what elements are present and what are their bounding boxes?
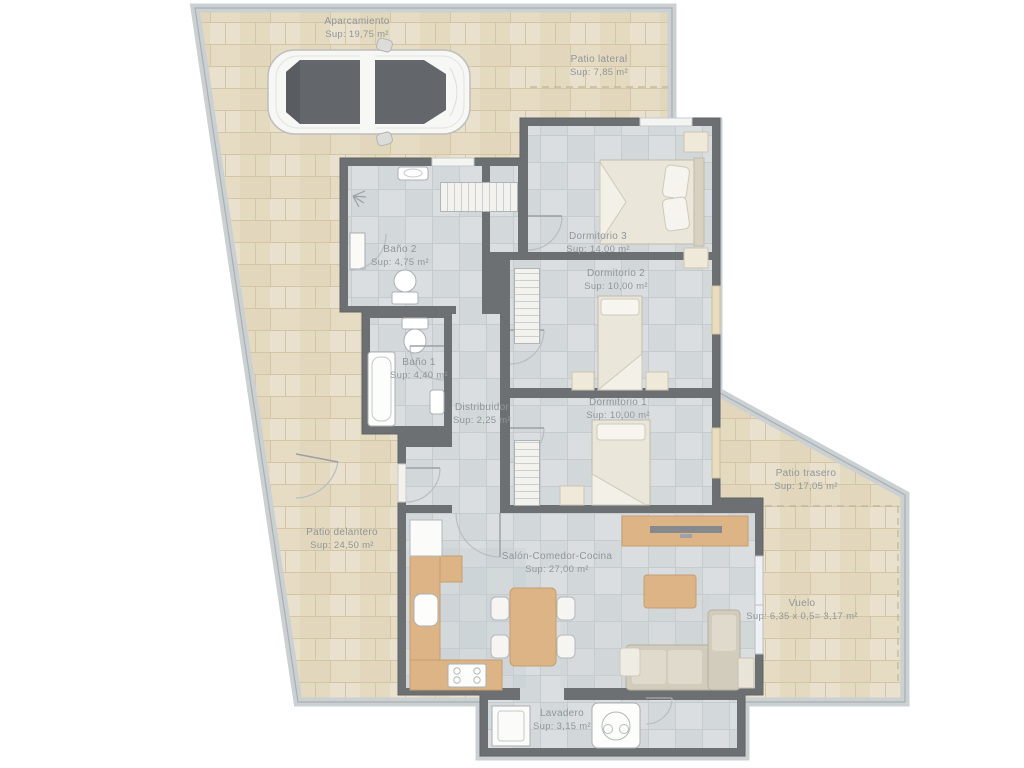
fridge-icon bbox=[410, 520, 442, 556]
stove-icon bbox=[448, 664, 486, 687]
wardrobe-dormitorio1 bbox=[514, 440, 540, 506]
bed-single-dormitorio1 bbox=[592, 420, 650, 505]
entry-door-leaf bbox=[350, 233, 365, 269]
wardrobe-dormitorio2 bbox=[514, 268, 540, 344]
opening-salon-lavadero bbox=[520, 686, 564, 702]
dining-table bbox=[510, 588, 556, 666]
bathtub-icon bbox=[368, 352, 395, 426]
sliding-door-vuelo bbox=[755, 556, 763, 654]
nightstand-dormitorio3-top bbox=[684, 132, 708, 152]
washing-machine-icon bbox=[592, 703, 640, 748]
window-dormitorio3 bbox=[640, 118, 692, 126]
bed-single-dormitorio2 bbox=[598, 296, 642, 390]
nightstand-dormitorio2-right bbox=[646, 372, 668, 390]
washbasin-icon-bano1 bbox=[430, 390, 444, 414]
tv-console bbox=[622, 516, 748, 546]
window-dormitorio1 bbox=[712, 428, 720, 478]
chair bbox=[491, 597, 509, 620]
floor-plan-page: AparcamientoSup: 19,75 m² Patio lateralS… bbox=[0, 0, 1024, 768]
toilet-icon-bano2 bbox=[392, 270, 418, 304]
nightstand-dormitorio2-left bbox=[572, 372, 594, 390]
window-dormitorio2 bbox=[712, 286, 720, 334]
chair bbox=[491, 635, 509, 658]
car-icon bbox=[268, 37, 470, 146]
floor-vestibulo bbox=[406, 447, 452, 505]
laundry-sink-icon bbox=[492, 706, 530, 746]
coffee-table bbox=[644, 575, 696, 608]
nightstand-dormitorio1 bbox=[560, 486, 584, 505]
bed-double-dormitorio3 bbox=[600, 158, 704, 246]
washbasin-icon-bano2 bbox=[398, 167, 428, 180]
chair bbox=[557, 597, 575, 620]
side-table bbox=[738, 658, 754, 688]
floor-distribuidor bbox=[452, 314, 500, 513]
closet-hall bbox=[440, 182, 518, 212]
floor-plan-drawing bbox=[0, 0, 1024, 768]
toilet-icon-bano1 bbox=[402, 318, 428, 353]
door-gap-patio-delantero bbox=[398, 464, 406, 502]
opening-bano2-distribuidor bbox=[456, 304, 482, 316]
kitchen-sink-icon bbox=[414, 594, 438, 626]
window-north bbox=[432, 158, 474, 166]
chair bbox=[557, 635, 575, 658]
nightstand-dormitorio3-bottom bbox=[684, 248, 708, 268]
